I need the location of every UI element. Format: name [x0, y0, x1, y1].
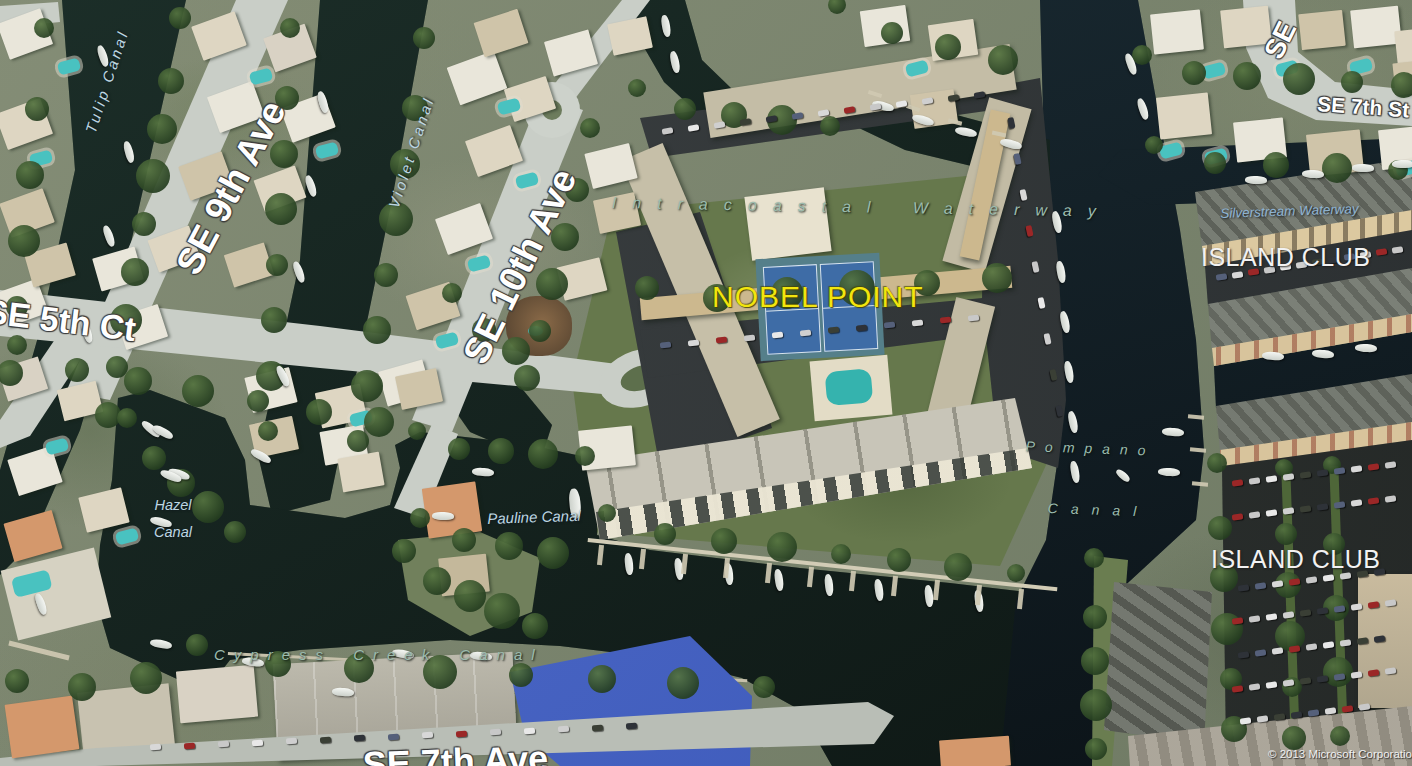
parked-car	[1368, 497, 1380, 504]
dock	[765, 562, 772, 582]
tree-canopy	[258, 421, 278, 441]
parked-car	[688, 339, 700, 346]
decor-layer	[0, 0, 1412, 766]
parked-car	[1385, 461, 1397, 468]
parked-car	[1255, 582, 1267, 589]
parked-car	[1266, 613, 1278, 620]
tree-canopy	[635, 276, 659, 300]
dock	[681, 554, 688, 574]
parked-car	[1266, 681, 1278, 688]
parked-car	[884, 321, 896, 328]
parked-car	[1257, 715, 1269, 722]
tree-canopy	[1341, 71, 1363, 93]
parked-car	[388, 733, 399, 740]
dock	[1188, 414, 1204, 419]
tree-canopy	[454, 580, 486, 612]
dock	[891, 576, 898, 596]
parked-car	[558, 726, 569, 733]
house-roof	[1394, 29, 1412, 66]
tree-canopy	[1085, 738, 1107, 760]
boat	[1063, 360, 1075, 383]
house-roof	[1350, 6, 1402, 49]
house-roof	[465, 125, 523, 177]
parked-car	[792, 112, 804, 120]
tree-canopy	[820, 116, 840, 136]
boat	[954, 126, 977, 138]
tree-canopy	[408, 422, 426, 440]
parked-car	[354, 735, 365, 742]
parked-car	[1306, 576, 1318, 583]
tree-canopy	[1080, 689, 1112, 721]
house-roof	[395, 368, 443, 410]
tree-canopy	[117, 408, 137, 428]
swimming-pool	[467, 254, 492, 272]
parked-car	[1374, 635, 1386, 642]
boat	[1245, 176, 1267, 185]
tree-canopy	[121, 258, 149, 286]
tree-canopy	[484, 593, 520, 629]
tree-canopy	[575, 446, 595, 466]
parked-car	[1249, 477, 1261, 484]
tree-canopy	[514, 365, 540, 391]
tree-canopy	[831, 544, 851, 564]
parked-car	[968, 314, 980, 321]
parked-car	[1037, 297, 1045, 309]
tree-canopy	[68, 673, 96, 701]
parked-car	[1392, 246, 1404, 254]
tree-canopy	[828, 0, 846, 14]
house-roof	[474, 9, 529, 57]
tree-canopy	[711, 528, 737, 554]
parked-car	[1325, 707, 1337, 714]
parked-car	[1359, 703, 1371, 710]
parked-car	[1283, 611, 1295, 618]
dock	[1017, 589, 1024, 609]
tree-canopy	[280, 18, 300, 38]
parked-car	[1351, 671, 1363, 678]
parked-car	[490, 729, 501, 736]
dock	[1190, 447, 1206, 452]
tree-canopy	[351, 370, 383, 402]
house-roof	[1150, 9, 1204, 54]
tree-canopy	[536, 268, 568, 300]
parked-car	[1368, 601, 1380, 608]
parked-car	[1385, 599, 1397, 606]
house-roof	[939, 736, 1011, 766]
tree-canopy	[65, 358, 89, 382]
parked-car	[524, 727, 535, 734]
dock	[639, 549, 646, 569]
parked-car	[1323, 574, 1335, 581]
tree-canopy	[423, 567, 451, 595]
tree-canopy	[1083, 605, 1107, 629]
parked-car	[772, 331, 784, 338]
tree-canopy	[509, 663, 533, 687]
parked-car	[1283, 507, 1295, 514]
parked-car	[1323, 641, 1335, 648]
boat	[472, 467, 495, 477]
dock	[597, 545, 604, 565]
parked-car	[1300, 471, 1312, 478]
tree-canopy	[1204, 152, 1226, 174]
tree-canopy	[628, 79, 646, 97]
tree-canopy	[392, 539, 416, 563]
house-roof	[1156, 92, 1212, 139]
parked-car	[592, 724, 603, 731]
tree-canopy	[1132, 45, 1152, 65]
parked-car	[1249, 683, 1261, 690]
boat	[1055, 260, 1067, 283]
parked-car	[744, 334, 756, 341]
house-roof	[607, 16, 653, 56]
tree-canopy	[1081, 647, 1109, 675]
parked-car	[1289, 645, 1301, 652]
swimming-pool	[315, 141, 340, 159]
tree-canopy	[1007, 564, 1025, 582]
tree-canopy	[522, 613, 548, 639]
tree-canopy	[132, 212, 156, 236]
boat	[304, 174, 318, 197]
house-roof	[78, 487, 129, 533]
label-island-club-north: ISLAND CLUB	[1201, 243, 1370, 272]
tree-canopy	[944, 553, 972, 581]
tree-canopy	[448, 438, 470, 460]
parked-car	[1283, 473, 1295, 480]
tree-canopy	[753, 676, 775, 698]
tree-canopy	[537, 537, 569, 569]
tree-canopy	[1145, 136, 1163, 154]
boat	[1162, 427, 1185, 437]
tree-canopy	[654, 523, 676, 545]
parked-car	[286, 738, 297, 745]
parked-car	[1249, 511, 1261, 518]
parked-car	[1025, 225, 1033, 237]
copyright-attribution: © 2013 Microsoft Corporation	[1268, 748, 1412, 760]
parked-car	[1266, 509, 1278, 516]
parked-car	[800, 329, 812, 336]
parked-car	[626, 723, 637, 730]
house-roof	[435, 203, 493, 255]
house-roof	[176, 665, 258, 724]
parked-car	[1334, 501, 1346, 508]
house-roof	[191, 11, 247, 61]
parked-car	[1351, 603, 1363, 610]
parked-car	[740, 118, 752, 126]
parked-car	[456, 730, 467, 737]
tree-canopy	[1182, 61, 1206, 85]
parked-car	[660, 341, 672, 348]
tree-canopy	[374, 263, 398, 287]
parked-car	[1238, 584, 1250, 591]
dock	[868, 90, 883, 98]
tree-canopy	[767, 532, 797, 562]
tree-canopy	[169, 7, 191, 29]
parked-car	[1007, 117, 1015, 129]
parked-car	[844, 106, 856, 114]
parked-car	[948, 94, 960, 102]
swimming-pool	[45, 437, 70, 455]
parked-car	[1342, 705, 1354, 712]
tree-canopy	[363, 316, 391, 344]
dock	[849, 571, 856, 591]
boat	[999, 137, 1022, 150]
parked-car	[1306, 643, 1318, 650]
swimming-pool	[249, 67, 274, 85]
tree-canopy	[588, 665, 616, 693]
parked-car	[714, 121, 726, 129]
parked-car	[1357, 637, 1369, 644]
tree-canopy	[495, 532, 523, 560]
parked-car	[1043, 333, 1051, 345]
parked-car	[1340, 639, 1352, 646]
boat	[874, 579, 885, 602]
boat	[1302, 169, 1324, 178]
boat	[624, 553, 634, 576]
parked-car	[870, 103, 882, 111]
house-roof	[544, 29, 598, 76]
tree-canopy	[580, 118, 600, 138]
parked-car	[1216, 273, 1228, 281]
tree-canopy	[182, 375, 214, 407]
parked-car	[1013, 153, 1021, 165]
tree-canopy	[265, 193, 297, 225]
parked-car	[974, 91, 986, 99]
boat	[432, 512, 454, 521]
tree-canopy	[1207, 453, 1227, 473]
tree-canopy	[1233, 62, 1261, 90]
parked-car	[1300, 677, 1312, 684]
tree-canopy	[529, 320, 551, 342]
house-roof	[5, 696, 80, 759]
swimming-pool	[115, 527, 140, 545]
parked-car	[1376, 248, 1388, 256]
parked-car	[1031, 261, 1039, 273]
tree-canopy	[136, 159, 170, 193]
tree-canopy	[25, 97, 49, 121]
house-roof	[3, 510, 62, 562]
tree-canopy	[147, 114, 177, 144]
parked-car	[1300, 505, 1312, 512]
tree-canopy	[452, 528, 476, 552]
parked-car	[1240, 717, 1252, 724]
parked-car	[1232, 685, 1244, 692]
parked-car	[320, 736, 331, 743]
boat	[1355, 343, 1377, 352]
tree-canopy	[1263, 152, 1289, 178]
swimming-pool	[57, 57, 82, 75]
parked-car	[1249, 615, 1261, 622]
parked-car	[1055, 405, 1063, 417]
tree-canopy	[1084, 548, 1104, 568]
dock	[807, 567, 814, 587]
tree-canopy	[598, 504, 616, 522]
tree-canopy	[130, 662, 162, 694]
tree-canopy	[887, 548, 911, 572]
tree-canopy	[935, 34, 961, 60]
label-nobel-point: NOBEL POINT	[712, 280, 924, 314]
parked-car	[1308, 709, 1320, 716]
boat	[33, 592, 48, 615]
boat	[1392, 160, 1412, 168]
boat	[1158, 467, 1180, 476]
parked-car	[1317, 503, 1329, 510]
tree-canopy	[1322, 153, 1352, 183]
tree-canopy	[306, 399, 332, 425]
parked-car	[1368, 669, 1380, 676]
tree-canopy	[5, 669, 29, 693]
tree-canopy	[674, 98, 696, 120]
dock	[933, 580, 940, 600]
parked-car	[1368, 463, 1380, 470]
parked-car	[1232, 513, 1244, 520]
tree-canopy	[1275, 523, 1297, 545]
aerial-map[interactable]: Tulip Canal SE 9th Ave Violet Canal SE 1…	[0, 0, 1412, 766]
tree-canopy	[7, 335, 27, 355]
house-roof	[422, 481, 482, 538]
tree-canopy	[667, 667, 699, 699]
parked-car	[912, 319, 924, 326]
tree-canopy	[413, 27, 435, 49]
tree-canopy	[124, 367, 152, 395]
boat	[1352, 164, 1374, 173]
label-hazel-canal-line1: Hazel	[147, 497, 199, 513]
label-hazel-canal-line2: Canal	[147, 524, 199, 540]
parked-car	[1049, 369, 1057, 381]
dock	[992, 131, 1007, 138]
parked-car	[856, 324, 868, 331]
boat	[1136, 97, 1150, 120]
tree-canopy	[224, 521, 246, 543]
boat	[824, 574, 834, 597]
tree-canopy	[982, 263, 1012, 293]
parked-car	[1238, 651, 1250, 658]
parked-car	[252, 739, 263, 746]
tree-canopy	[8, 225, 40, 257]
house-roof	[584, 143, 637, 189]
parked-car	[828, 326, 840, 333]
parked-car	[1232, 479, 1244, 486]
parked-car	[688, 124, 700, 132]
dock	[1192, 481, 1208, 486]
boat	[1059, 310, 1071, 333]
tree-canopy	[1330, 726, 1350, 746]
parked-car	[1317, 469, 1329, 476]
parked-car	[1385, 667, 1397, 674]
boat	[669, 50, 681, 73]
parked-car	[1272, 647, 1284, 654]
tree-canopy	[488, 438, 514, 464]
label-cypress-creek-canal: Cypress Creek Canal	[214, 646, 544, 663]
boat	[151, 423, 174, 440]
swimming-pool	[905, 59, 930, 77]
boat	[122, 140, 135, 163]
parked-car	[1274, 713, 1286, 720]
parked-car	[1351, 499, 1363, 506]
swimming-pool	[435, 331, 460, 349]
boat	[149, 638, 172, 650]
house-roof	[337, 452, 384, 493]
dock	[948, 118, 963, 125]
tree-canopy	[528, 439, 558, 469]
parked-car	[1334, 467, 1346, 474]
boat	[1312, 349, 1335, 359]
tree-canopy	[442, 283, 462, 303]
parked-car	[716, 336, 728, 343]
boat	[1067, 410, 1079, 433]
tree-canopy	[1208, 516, 1232, 540]
house-roof	[1298, 10, 1346, 50]
parked-car	[184, 742, 195, 749]
boat	[1115, 468, 1132, 484]
parked-car	[662, 127, 674, 135]
tree-canopy	[347, 430, 369, 452]
parked-car	[940, 316, 952, 323]
tree-canopy	[988, 45, 1018, 75]
label-pauline-canal: Pauline Canal	[487, 507, 581, 527]
tree-canopy	[364, 407, 394, 437]
tree-canopy	[1282, 726, 1306, 750]
parked-car	[1291, 711, 1303, 718]
tree-canopy	[266, 254, 288, 276]
tree-canopy	[1391, 72, 1412, 98]
boat	[332, 687, 355, 697]
tree-canopy	[1283, 63, 1315, 95]
tree-canopy	[16, 161, 44, 189]
boat	[291, 260, 306, 283]
boat	[1262, 351, 1285, 361]
tree-canopy	[142, 446, 166, 470]
parked-car	[1019, 189, 1027, 201]
parked-car	[1300, 609, 1312, 616]
dock	[8, 641, 69, 661]
tree-canopy	[261, 307, 287, 333]
tree-canopy	[1323, 657, 1353, 687]
boat	[1069, 460, 1081, 483]
parked-car	[1266, 475, 1278, 482]
tree-canopy	[186, 634, 208, 656]
tree-canopy	[158, 68, 184, 94]
parked-car	[422, 732, 433, 739]
tree-canopy	[410, 508, 430, 528]
boat	[660, 14, 672, 37]
label-island-club-south: ISLAND CLUB	[1211, 545, 1380, 574]
parked-car	[1351, 465, 1363, 472]
parked-car	[218, 741, 229, 748]
house-roof	[447, 51, 508, 106]
parked-car	[150, 744, 161, 751]
tree-canopy	[34, 18, 54, 38]
boat	[101, 224, 116, 247]
parked-car	[1255, 649, 1267, 656]
boat	[774, 569, 785, 592]
parked-car	[1385, 495, 1397, 502]
